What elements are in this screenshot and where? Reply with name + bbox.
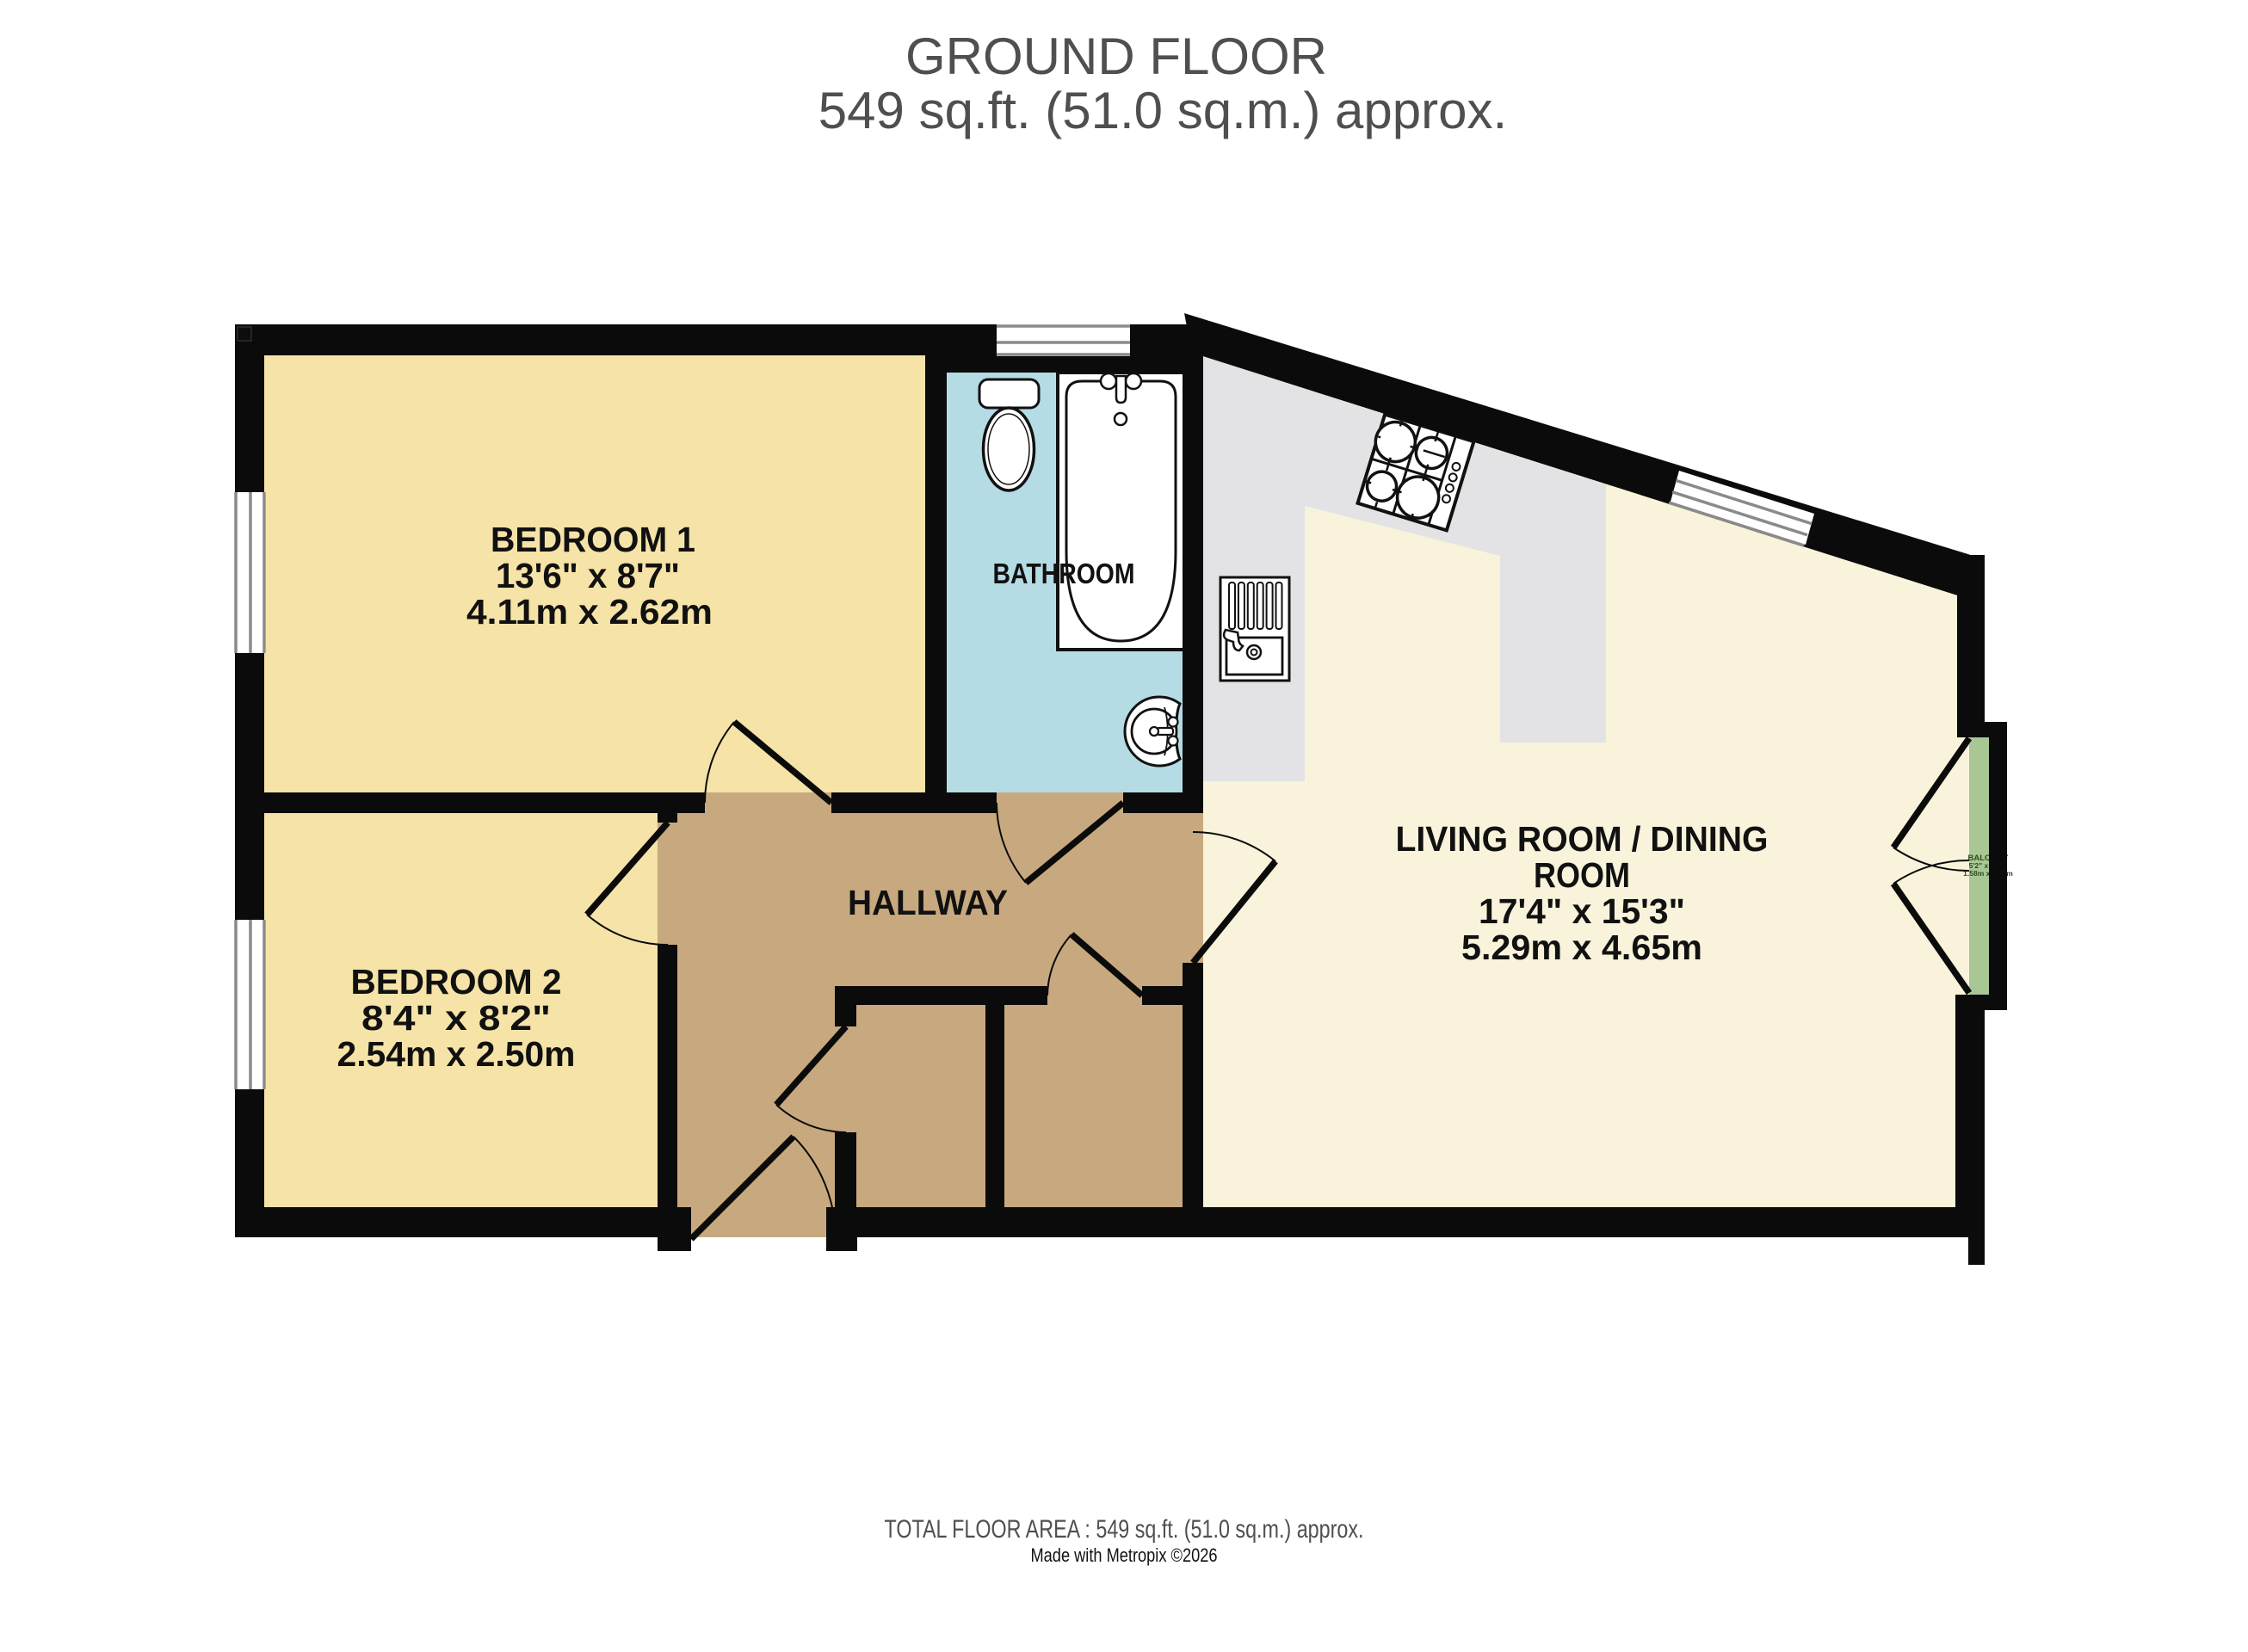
svg-text:4.11m x 2.62m: 4.11m x 2.62m (466, 592, 713, 632)
svg-text:549 sq.ft. (51.0 sq.m.) approx: 549 sq.ft. (51.0 sq.m.) approx. (818, 82, 1507, 139)
svg-text:2.54m x 2.50m: 2.54m x 2.50m (337, 1034, 576, 1074)
svg-text:HALLWAY: HALLWAY (848, 883, 1008, 922)
svg-text:17'4" x 15'3": 17'4" x 15'3" (1479, 891, 1685, 931)
svg-text:LIVING ROOM / DINING: LIVING ROOM / DINING (1396, 819, 1769, 859)
svg-text:BATHROOM: BATHROOM (993, 558, 1135, 589)
svg-text:ROOM: ROOM (1534, 855, 1630, 895)
svg-text:5.29m x 4.65m: 5.29m x 4.65m (1461, 928, 1702, 967)
svg-text:TOTAL FLOOR AREA : 549 sq.ft.: TOTAL FLOOR AREA : 549 sq.ft. (51.0 sq.m… (885, 1515, 1364, 1544)
svg-text:BEDROOM 2: BEDROOM 2 (351, 962, 562, 1002)
svg-text:BEDROOM 1: BEDROOM 1 (491, 520, 695, 559)
svg-text:GROUND FLOOR: GROUND FLOOR (905, 28, 1327, 85)
svg-text:Made with Metropix ©2026: Made with Metropix ©2026 (1031, 1544, 1218, 1566)
svg-text:8'4" x 8'2": 8'4" x 8'2" (361, 998, 551, 1038)
svg-text:13'6" x 8'7": 13'6" x 8'7" (496, 556, 680, 595)
